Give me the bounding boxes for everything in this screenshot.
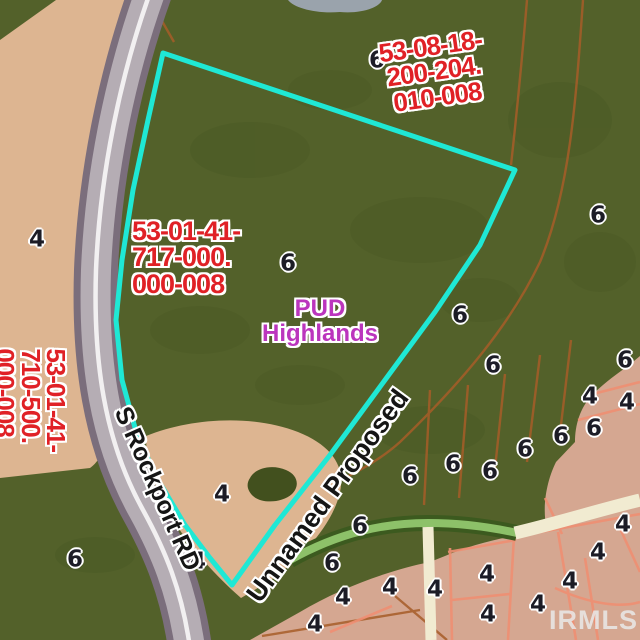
zone-number-label: 4 <box>382 577 398 600</box>
parcel-map: 666666666666666444444444444444 53-08-18-… <box>0 0 640 640</box>
zone-number-label: 4 <box>582 386 598 409</box>
zone-number-label: 6 <box>352 516 368 539</box>
zone-number-label: 6 <box>482 461 498 484</box>
zoning-label-line: PUD <box>262 296 378 321</box>
zone-number-label: 4 <box>530 594 546 617</box>
zone-number-label: 6 <box>452 305 468 328</box>
zone-number-label: 6 <box>586 418 602 441</box>
zone-number-label: 6 <box>402 466 418 489</box>
irmls-watermark: IRMLS <box>549 605 638 636</box>
zone-number-label: 4 <box>307 614 323 637</box>
parcel-id-line: 717-000. <box>132 244 240 270</box>
zone-number-label: 6 <box>324 553 340 576</box>
zone-number-label: 4 <box>427 579 443 602</box>
zone-number-label: 4 <box>590 542 606 565</box>
zone-number-label: 4 <box>29 229 45 252</box>
zone-number-label: 6 <box>445 454 461 477</box>
zone-number-label: 4 <box>479 564 495 587</box>
zone-number-label: 4 <box>615 514 631 537</box>
parcel-id-line: 710-500. <box>17 348 42 452</box>
zone-number-label: 6 <box>590 205 606 228</box>
zone-number-label: 6 <box>485 355 501 378</box>
parcel-id-label-center: 53-01-41- 717-000. 000-008 <box>132 218 240 297</box>
zone-number-label: 6 <box>67 549 83 572</box>
zone-number-label: 4 <box>335 587 351 610</box>
parcel-id-line: 000-008 <box>0 348 17 452</box>
parcel-id-label-southwest: 53-01-41- 710-500. 000-008 <box>0 348 68 452</box>
zoning-label-line: Highlands <box>262 321 378 346</box>
zoning-label-pud-highlands: PUD Highlands <box>262 296 378 346</box>
zone-number-label: 6 <box>517 439 533 462</box>
parcel-id-line: 53-01-41- <box>43 348 68 452</box>
zone-number-label: 6 <box>617 350 633 373</box>
zone-number-label: 6 <box>553 426 569 449</box>
zone-number-label: 6 <box>280 253 296 276</box>
parcel-id-line: 53-01-41- <box>132 218 240 244</box>
parcel-id-line: 000-008 <box>132 271 240 297</box>
parcel-id-label-northeast: 53-08-18- 200-204. 010-008 <box>377 27 490 117</box>
zone-number-label: 4 <box>562 571 578 594</box>
zone-number-label: 4 <box>480 604 496 627</box>
zone-number-label: 4 <box>214 484 230 507</box>
zone-number-label: 4 <box>619 392 635 415</box>
